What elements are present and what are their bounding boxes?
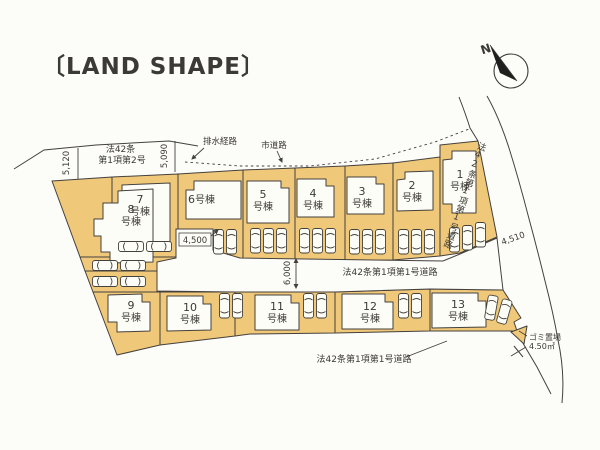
car-icon	[304, 294, 314, 319]
page-title: 〔LAND SHAPE〕	[42, 53, 265, 80]
car-icon	[350, 230, 360, 255]
car-icon	[363, 230, 373, 255]
car-icon	[233, 294, 243, 319]
car-icon	[317, 294, 327, 319]
dim-6000: 6,000	[283, 261, 293, 285]
car-icon	[147, 242, 172, 252]
car-icon	[264, 229, 274, 254]
car-icon	[214, 230, 224, 255]
car-icon	[277, 229, 287, 254]
car-icon	[412, 294, 422, 319]
car-icon	[251, 229, 261, 254]
drainage-route-label: 排水経路	[203, 136, 238, 147]
car-icon	[399, 294, 409, 319]
car-icon	[326, 229, 336, 254]
car-icon	[313, 229, 323, 254]
dim-4500: 4,500	[183, 236, 207, 246]
middle-road-law-label: 法42条第1項第1号道路	[343, 266, 438, 278]
car-icon	[121, 277, 146, 287]
land-shape-page: 〔LAND SHAPE〕 N	[0, 0, 600, 450]
car-icon	[399, 230, 409, 255]
dim-5120: 5,120	[62, 151, 72, 175]
dim-5090: 5,090	[160, 144, 170, 168]
car-icon	[227, 230, 237, 255]
car-icon	[93, 277, 118, 287]
car-icon	[425, 230, 435, 255]
land-shape-diagram: 〔LAND SHAPE〕 N	[0, 0, 600, 450]
car-icon	[476, 223, 486, 248]
car-icon	[119, 242, 144, 252]
car-icon	[376, 230, 386, 255]
car-icon	[220, 294, 230, 319]
bottom-road-law-label: 法42条第1項第1号道路	[317, 353, 412, 365]
car-icon	[463, 226, 473, 251]
city-road-label: 市道路	[261, 140, 287, 151]
car-icon	[412, 230, 422, 255]
plot-label-6: 6号棟	[188, 193, 215, 206]
car-icon	[121, 261, 146, 271]
car-icon	[93, 261, 118, 271]
car-icon	[300, 229, 310, 254]
